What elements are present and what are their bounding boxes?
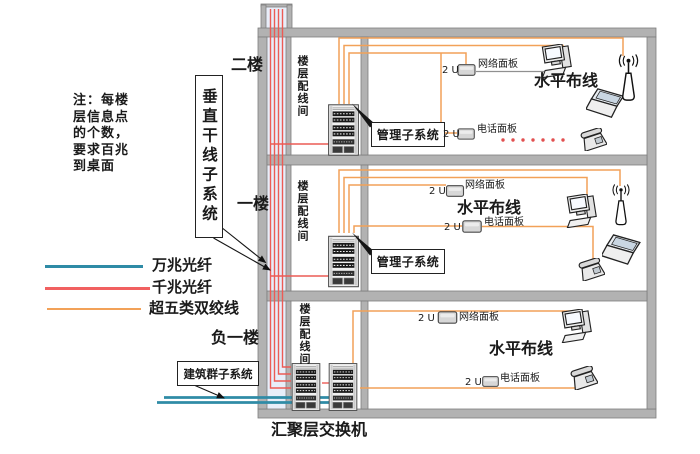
management-subsystem-box-floor-1: 管理子系统: [371, 249, 445, 274]
phone-patch-panel-basement: [483, 377, 499, 387]
network-patch-panel-basement: [438, 312, 456, 323]
network-patch-panel-floor-1: [447, 186, 464, 197]
network-panel-label-floor-1: 网络面板: [465, 181, 505, 191]
network-panel-label-basement: 网络面板: [459, 313, 499, 323]
telephone-icon-floor-1: [578, 257, 606, 281]
building-group-subsystem-box: 建筑群子系统: [177, 361, 259, 386]
management-subsystem-label-floor-1: 管理子系统: [377, 253, 440, 270]
wireless-antenna-icon-floor-2: [619, 54, 637, 100]
phone-patch-panel-floor-2: [458, 129, 475, 139]
horizontal-cabling-label-floor-1: 水平布线: [457, 200, 521, 216]
room-label-floor-1: 楼层配线间: [297, 180, 308, 243]
wireless-antenna-icon-floor-1: [613, 184, 629, 224]
u2-label-phone-floor-1: 2 U: [444, 223, 461, 233]
vertical-trunk-subsystem-box: 垂直干线子系统: [195, 75, 223, 238]
horizontal-cabling-label-floor-2: 水平布线: [534, 73, 598, 89]
network-patch-panel-floor-2: [458, 65, 475, 76]
aggregation-switch-label: 汇聚层交换机: [263, 422, 375, 438]
floor-2-label: 二楼: [231, 57, 263, 73]
legend-line-1g-fiber: [45, 287, 150, 290]
structured-cabling-diagram: 万兆光纤 千兆光纤 超五类双绞线 注：每楼 层信息点 的个数， 要求百兆 到桌面…: [0, 0, 700, 454]
u2-label-network-basement: 2 U: [418, 314, 435, 324]
u2-label-network-floor-2: 2 U: [442, 66, 459, 76]
phone-patch-panel-floor-1: [463, 221, 481, 232]
desktop-computer-icon-floor-1: [563, 193, 598, 228]
legend-line-cat5e: [47, 308, 141, 310]
u2-label-phone-basement: 2 U: [465, 378, 482, 388]
note-text: 注：每楼 层信息点 的个数， 要求百兆 到桌面: [73, 93, 129, 176]
u2-label-phone-floor-2: 2 U: [443, 130, 460, 140]
management-subsystem-box-floor-2: 管理子系统: [371, 122, 445, 147]
telephone-icon-floor-2: [580, 127, 608, 151]
room-label-floor-2: 楼层配线间: [297, 55, 308, 118]
rack-basement-left: [292, 364, 320, 411]
phone-panel-label-basement: 电话面板: [500, 374, 540, 384]
rack-floor-1: [329, 236, 359, 286]
cable-riser-shaft: [266, 7, 287, 409]
phone-panel-label-floor-2: 电话面板: [477, 125, 517, 135]
legend-label-cat5e: 超五类双绞线: [149, 301, 239, 316]
legend-line-10g-fiber: [45, 265, 143, 268]
laptop-icon-floor-2: [586, 89, 623, 117]
building-group-subsystem-label: 建筑群子系统: [184, 366, 253, 382]
horizontal-cabling-label-basement: 水平布线: [489, 341, 553, 357]
desktop-computer-icon-basement: [558, 308, 593, 343]
room-label-basement: 楼层配线间: [299, 303, 310, 366]
legend-label-1g-fiber: 千兆光纤: [152, 280, 212, 295]
phone-dotted-line: [501, 138, 564, 141]
phone-panel-label-floor-1: 电话面板: [484, 218, 524, 228]
legend-label-10g-fiber: 万兆光纤: [152, 258, 212, 273]
rack-basement-right: [329, 364, 357, 411]
rack-floor-2: [329, 105, 359, 155]
laptop-icon-floor-1: [601, 235, 640, 264]
floor-1-label: 一楼: [237, 196, 269, 212]
vertical-trunk-subsystem-label: 垂直干线子系统: [198, 88, 220, 225]
network-panel-label-floor-2: 网络面板: [478, 60, 518, 70]
basement-1-label: 负一楼: [211, 330, 259, 346]
diagram-canvas: [0, 0, 700, 454]
ten-gigabit-fiber-lines: [157, 398, 352, 403]
telephone-icon-basement: [569, 365, 598, 390]
u2-label-network-floor-1: 2 U: [429, 187, 446, 197]
management-subsystem-label-floor-2: 管理子系统: [377, 126, 440, 143]
